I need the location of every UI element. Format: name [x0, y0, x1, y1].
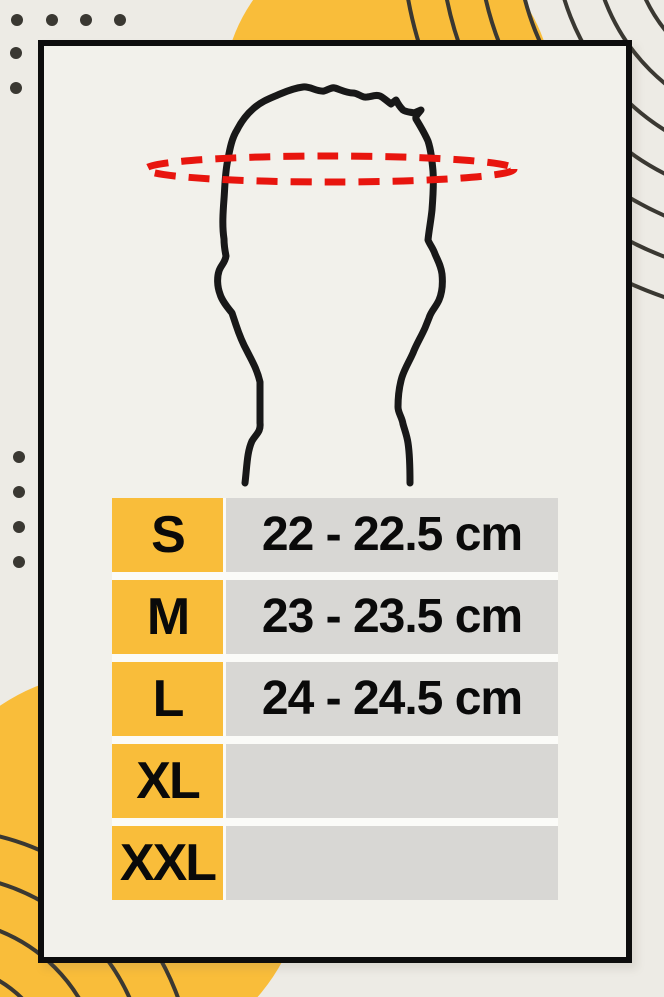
size-table: S 22 - 22.5 cm M 23 - 23.5 cm L 24 - 24.…	[112, 498, 558, 900]
head-outline-icon	[218, 87, 443, 483]
circumference-measure-ellipse-icon	[146, 156, 514, 182]
table-row: XL	[112, 744, 558, 818]
size-label-cell: XXL	[112, 826, 223, 900]
size-value-cell	[226, 826, 558, 900]
size-value-cell: 22 - 22.5 cm	[226, 498, 558, 572]
size-label-cell: M	[112, 580, 223, 654]
size-value-cell: 23 - 23.5 cm	[226, 580, 558, 654]
table-row: L 24 - 24.5 cm	[112, 662, 558, 736]
size-value-cell	[226, 744, 558, 818]
size-label-cell: S	[112, 498, 223, 572]
size-label-cell: L	[112, 662, 223, 736]
infographic-canvas: S 22 - 22.5 cm M 23 - 23.5 cm L 24 - 24.…	[0, 0, 664, 997]
size-label-cell: XL	[112, 744, 223, 818]
size-value-cell: 24 - 24.5 cm	[226, 662, 558, 736]
table-row: M 23 - 23.5 cm	[112, 580, 558, 654]
table-row: XXL	[112, 826, 558, 900]
size-chart-card: S 22 - 22.5 cm M 23 - 23.5 cm L 24 - 24.…	[38, 40, 632, 963]
table-row: S 22 - 22.5 cm	[112, 498, 558, 572]
